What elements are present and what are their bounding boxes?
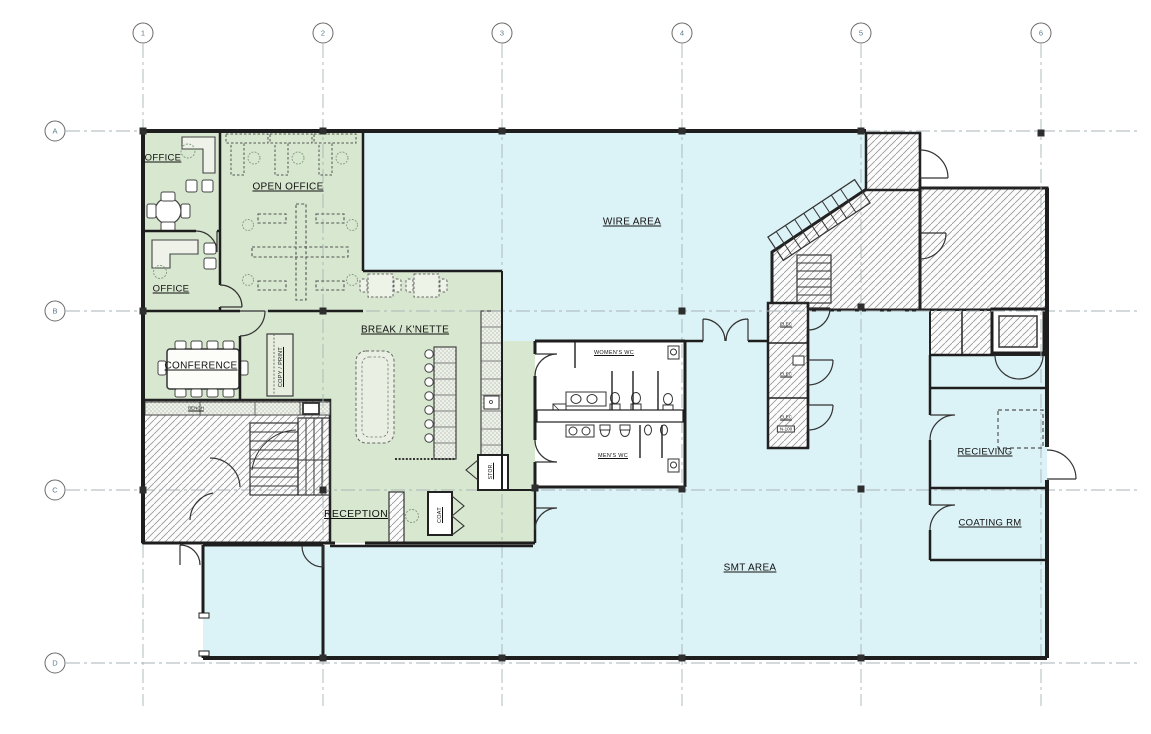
grid-label-1: 1 <box>141 29 145 38</box>
floor-plan: 1 2 3 4 5 6 A B C D OFFICE OPEN OFFICE O… <box>0 0 1151 734</box>
room-label-office-2: OFFICE <box>153 284 190 295</box>
grid-bubble-row-a: A <box>45 121 66 142</box>
grid-label-6: 6 <box>1039 29 1043 38</box>
room-label-wire-area: WIRE AREA <box>603 217 661 228</box>
grid-bubble-col-6: 6 <box>1031 23 1052 44</box>
grid-label-b: B <box>52 307 57 316</box>
grid-bubble-col-4: 4 <box>672 23 693 44</box>
room-label-bench: BENCH <box>188 406 204 411</box>
grid-label-3: 3 <box>500 29 504 38</box>
room-label-womens-wc: WOMEN'S WC <box>594 350 634 356</box>
grid-label-4: 4 <box>680 29 684 38</box>
grid-bubble-col-1: 1 <box>133 23 154 44</box>
grid-bubble-col-3: 3 <box>492 23 513 44</box>
grid-bubble-row-d: D <box>45 653 66 674</box>
grid-bubble-col-5: 5 <box>851 23 872 44</box>
room-label-stor: STOR. <box>488 463 494 480</box>
grid-label-c: C <box>52 486 57 495</box>
room-label-copy-print: COPY / PRINT <box>278 347 284 387</box>
room-label-coat: COAT <box>437 507 443 523</box>
grid-label-a: A <box>52 127 57 136</box>
grid-bubble-col-2: 2 <box>313 23 334 44</box>
room-label-elec-3: ELEC <box>780 415 792 420</box>
room-label-elec-2: ELEC <box>780 372 792 377</box>
room-label-smt-area: SMT AREA <box>724 563 777 574</box>
room-label-break: BREAK / K'NETTE <box>361 325 449 336</box>
grid-bubble-row-b: B <box>45 301 66 322</box>
room-label-office-1: OFFICE <box>145 153 182 164</box>
panel-tag-n100: N-100 <box>777 426 795 433</box>
room-label-open-office: OPEN OFFICE <box>252 182 323 193</box>
room-label-mens-wc: MEN'S WC <box>598 453 628 459</box>
room-label-reception: RECEPTION <box>324 508 388 520</box>
room-label-coating-rm: COATING RM <box>959 518 1022 529</box>
grid-label-5: 5 <box>859 29 863 38</box>
grid-label-d: D <box>52 659 57 668</box>
grid-bubble-row-c: C <box>45 480 66 501</box>
room-label-conference: CONFERENCE <box>164 361 237 372</box>
room-label-elec-1: ELEC <box>780 322 792 327</box>
grid-label-2: 2 <box>321 29 325 38</box>
room-label-recieving: RECIEVING <box>958 447 1013 458</box>
